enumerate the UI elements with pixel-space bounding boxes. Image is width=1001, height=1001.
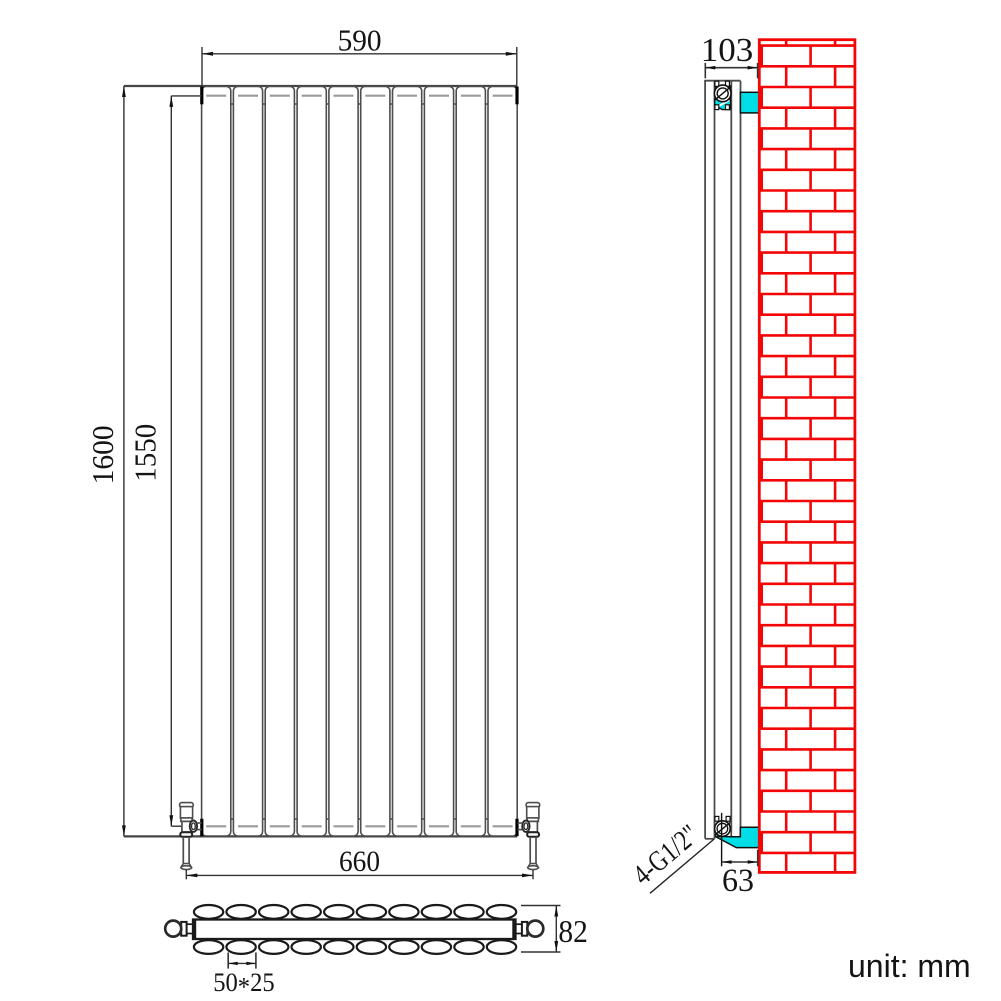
svg-text:63: 63: [722, 863, 754, 899]
svg-text:50*25: 50*25: [213, 968, 274, 1001]
svg-text:1550: 1550: [128, 424, 163, 482]
svg-text:590: 590: [338, 23, 382, 58]
svg-text:660: 660: [339, 845, 380, 878]
svg-text:103: 103: [701, 32, 754, 69]
svg-text:1600: 1600: [85, 425, 120, 484]
svg-text:82: 82: [558, 913, 588, 949]
svg-text:unit: mm: unit: mm: [848, 948, 971, 984]
